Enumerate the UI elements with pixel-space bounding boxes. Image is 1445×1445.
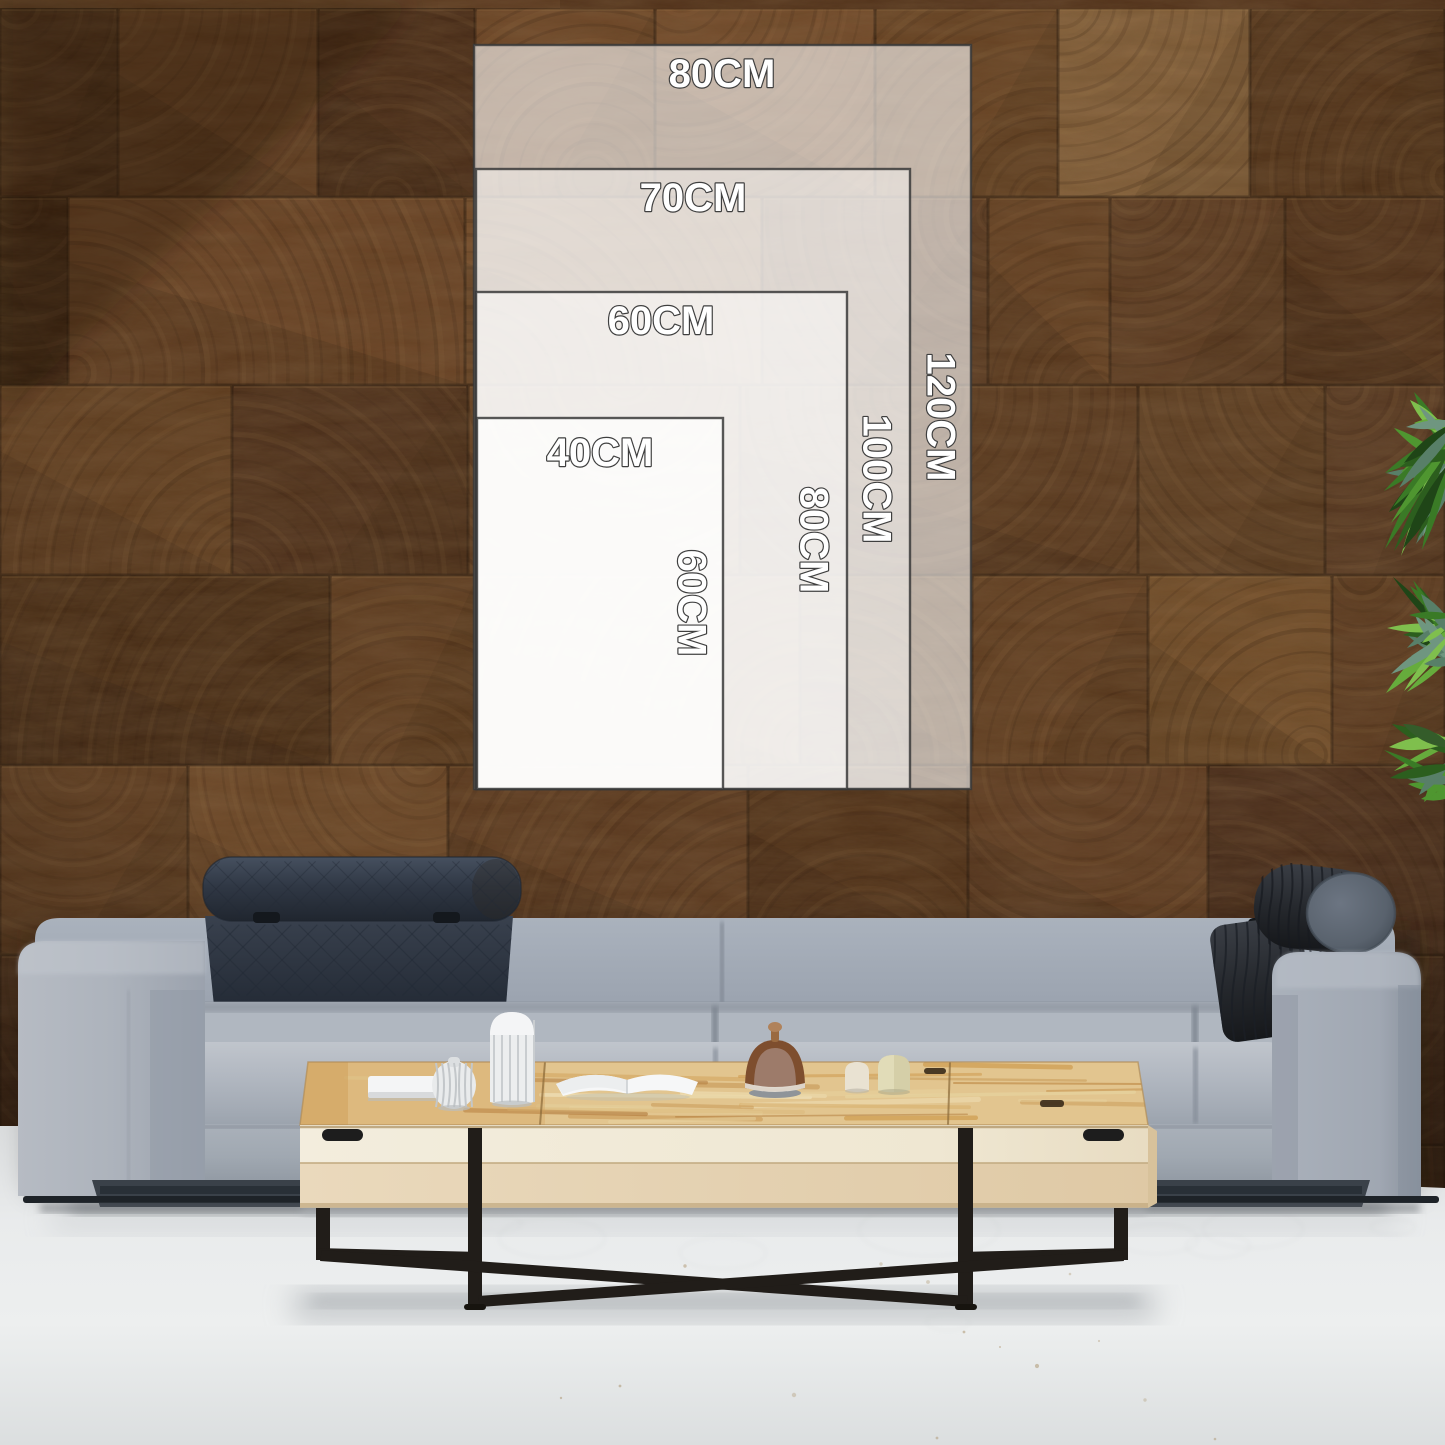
svg-text:80CM: 80CM	[791, 487, 835, 594]
svg-text:80CM: 80CM	[669, 52, 776, 96]
svg-text:60CM: 60CM	[608, 299, 715, 343]
svg-text:40CM: 40CM	[547, 431, 654, 475]
svg-text:60CM: 60CM	[669, 550, 713, 657]
svg-text:70CM: 70CM	[640, 176, 747, 220]
svg-text:120CM: 120CM	[918, 353, 962, 482]
svg-text:100CM: 100CM	[854, 415, 898, 544]
